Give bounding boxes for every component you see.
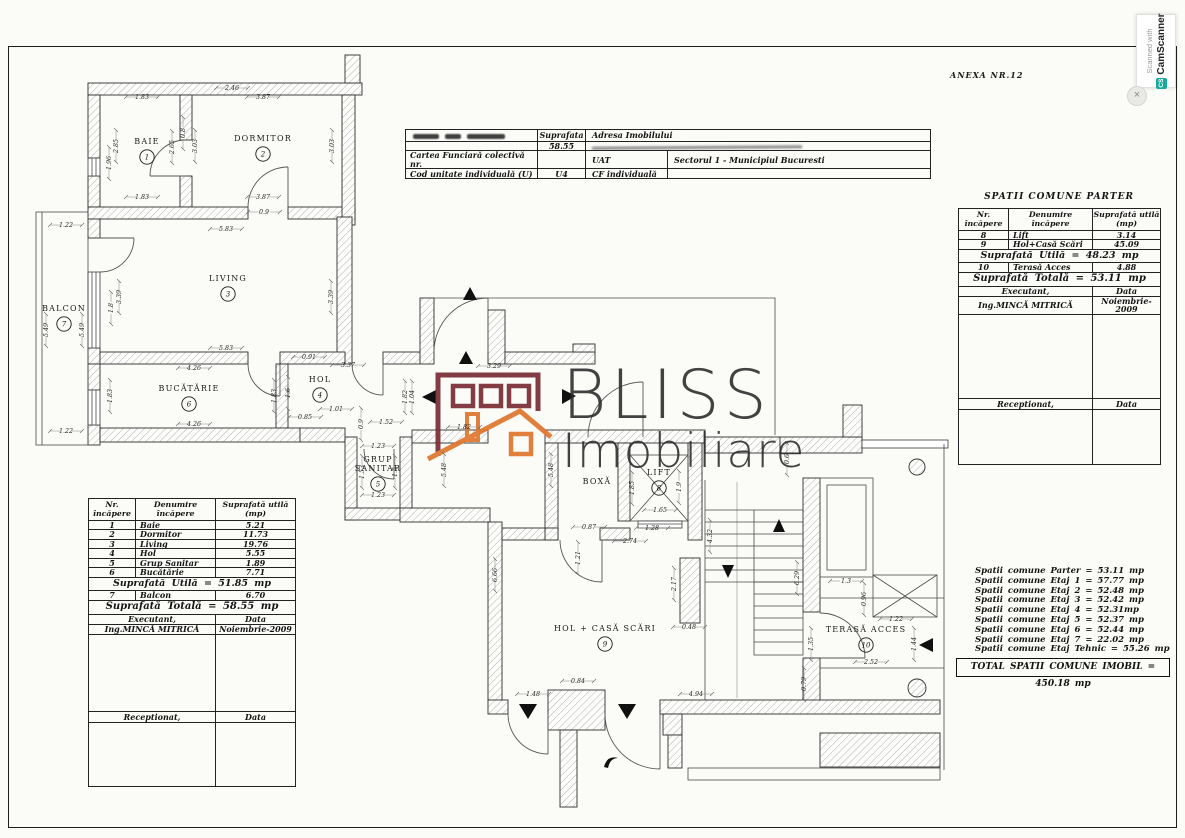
table-row: 2Dormitor11.73: [89, 530, 296, 539]
dimension-label: 1.83: [107, 378, 114, 414]
svg-text:1.96: 1.96: [106, 156, 113, 170]
camscanner-logo-icon: CS: [1156, 78, 1167, 89]
svg-text:2.74: 2.74: [622, 538, 637, 545]
svg-text:5: 5: [376, 481, 381, 489]
dimension-label: 1.35: [808, 626, 815, 662]
svg-text:1.44: 1.44: [911, 637, 918, 651]
dimension-label: 1.21: [575, 540, 582, 576]
room-label: BAIE1: [134, 137, 159, 164]
svg-text:1.83: 1.83: [135, 194, 149, 201]
svg-text:3.87: 3.87: [256, 94, 270, 101]
total-common-areas-box: TOTAL SPATII COMUNE IMOBIL = 450.18 mp: [956, 658, 1170, 677]
dimension-label: 4.32: [707, 518, 714, 554]
table-row: 5Grup Sanitar1.89: [89, 558, 296, 567]
table-row: 6Bucătărie7.71: [89, 568, 296, 577]
dimension-label: 0.85: [287, 414, 323, 421]
table-row: 1Baie5.21: [89, 521, 296, 530]
staircase: [705, 480, 803, 700]
svg-text:1.8: 1.8: [108, 303, 115, 313]
svg-text:5.83: 5.83: [219, 226, 233, 233]
dimension-label: 1.04: [409, 379, 416, 415]
svg-text:LIVING: LIVING: [209, 274, 247, 283]
room-label: TERASĂ ACCES10: [826, 625, 907, 652]
summary-line: Spatii comune Etaj 4 = 52.31mp: [975, 605, 1170, 615]
dimension-label: 2.65: [169, 129, 176, 165]
property-id-table: Suprafata Adresa Imobilului 58.55 Cartea…: [405, 129, 931, 179]
room-label: LIVING3: [209, 274, 247, 301]
svg-text:0.9: 0.9: [358, 419, 365, 429]
dimension-label: 3.87: [245, 194, 281, 201]
svg-text:1.83: 1.83: [271, 389, 278, 403]
dimension-label: 1.83: [124, 194, 160, 201]
dimension-label: 1.8: [108, 290, 115, 326]
camscanner-badge: Scanned with CS CamScanner: [1136, 16, 1174, 88]
svg-text:5.48: 5.48: [548, 463, 555, 477]
dimension-label: 1.22: [48, 222, 84, 229]
dimension-label: 3.39: [328, 279, 335, 315]
svg-text:1.82: 1.82: [457, 424, 471, 431]
room-label: BUCĂTĂRIE6: [158, 384, 219, 411]
table-row: 10Terasă Acces4.88: [959, 262, 1161, 272]
summary-line: Spatii comune Etaj 7 = 22.02 mp: [975, 635, 1170, 645]
svg-text:9: 9: [603, 641, 608, 649]
svg-text:1.82: 1.82: [402, 390, 409, 404]
svg-text:8: 8: [657, 485, 662, 493]
summary-line: Spatii comune Parter = 53.11 mp: [975, 566, 1170, 576]
table-row: 8Lift3.14: [959, 231, 1161, 240]
svg-text:4.26: 4.26: [186, 421, 201, 428]
dimension-label: 2.85: [113, 128, 120, 164]
svg-text:3: 3: [226, 291, 231, 299]
svg-text:GRUP: GRUP: [363, 455, 392, 464]
dimension-label: 1.96: [106, 145, 113, 181]
svg-text:2.17: 2.17: [671, 577, 678, 592]
svg-text:0.96: 0.96: [861, 592, 868, 606]
apartment-areas-table: Nr.încăpere Denumireîncăpere Suprafată u…: [88, 498, 296, 787]
svg-text:2.65: 2.65: [169, 140, 176, 155]
summary-line: Spatii comune Etaj 5 = 52.37 mp: [975, 615, 1170, 625]
dimension-label: 1.52: [368, 419, 404, 426]
svg-text:1.35: 1.35: [808, 637, 815, 651]
svg-text:SANITAR: SANITAR: [355, 464, 402, 473]
dimension-label: 1.22: [48, 428, 84, 435]
summary-line: Spatii comune Etaj 3 = 52.42 mp: [975, 595, 1170, 605]
svg-text:7: 7: [62, 321, 67, 329]
svg-text:BAIE: BAIE: [134, 137, 159, 146]
illegible-text: [406, 130, 538, 142]
svg-text:0.8: 0.8: [180, 128, 187, 138]
badge-scanned-with: Scanned with: [1145, 28, 1154, 73]
svg-text:1.6: 1.6: [285, 388, 292, 398]
svg-text:3.87: 3.87: [256, 194, 270, 201]
close-icon[interactable]: ×: [1127, 86, 1147, 106]
svg-text:1.23: 1.23: [371, 443, 385, 450]
svg-text:6.66: 6.66: [492, 568, 499, 582]
svg-text:10: 10: [862, 642, 871, 650]
svg-text:1.04: 1.04: [409, 390, 416, 404]
dimension-label: 6.29: [794, 560, 801, 596]
svg-text:1.22: 1.22: [59, 222, 73, 229]
dimension-label: 1.48: [515, 691, 551, 698]
svg-text:5.48: 5.48: [441, 463, 448, 477]
anexa-label: ANEXA NR.12: [950, 70, 1023, 80]
right-table-title: SPATII COMUNE PARTER: [958, 192, 1160, 202]
svg-text:6.29: 6.29: [794, 571, 801, 585]
dimension-label: 3.03: [329, 128, 336, 164]
summary-line: Spatii comune Etaj Tehnic = 55.26 mp: [975, 644, 1170, 654]
dimension-label: 1.44: [911, 626, 918, 662]
illegible-address: [586, 142, 931, 151]
svg-text:1.01: 1.01: [329, 406, 343, 413]
svg-text:3.29: 3.29: [487, 363, 501, 370]
svg-text:0.48: 0.48: [682, 624, 696, 631]
dimension-label: 5.49: [79, 312, 86, 348]
summary-line: Spatii comune Etaj 1 = 57.77 mp: [975, 576, 1170, 586]
svg-text:3.37: 3.37: [341, 362, 355, 369]
dimension-label: 1.23: [360, 492, 396, 499]
dimension-label: 0.48: [671, 624, 707, 631]
svg-text:3.03: 3.03: [329, 139, 336, 153]
dimension-label: 1.65: [642, 507, 678, 514]
watermark-sub: Imobiliare: [562, 424, 805, 479]
svg-text:1: 1: [145, 154, 149, 162]
badge-brand: CamScanner: [1156, 13, 1167, 74]
svg-text:6: 6: [187, 401, 192, 409]
room-label: HOL4: [309, 375, 331, 402]
svg-text:3.39: 3.39: [116, 290, 123, 304]
svg-text:1.48: 1.48: [526, 691, 540, 698]
watermark-logo-icon: [428, 375, 551, 459]
svg-text:0.9: 0.9: [259, 209, 269, 216]
dimension-label: 2.52: [853, 659, 889, 666]
table-row: 9Hol+Casă Scări45.09: [959, 240, 1161, 249]
svg-text:4.94: 4.94: [688, 691, 703, 698]
room-label: DORMITOR2: [234, 134, 292, 161]
svg-text:TERASĂ ACCES: TERASĂ ACCES: [826, 625, 907, 634]
dimension-label: 0.9: [246, 209, 282, 216]
svg-text:0.91: 0.91: [302, 354, 316, 361]
dimension-label: 4.26: [176, 365, 212, 372]
svg-text:1.23: 1.23: [371, 492, 385, 499]
svg-text:1.22: 1.22: [889, 616, 903, 623]
svg-text:1.9: 1.9: [676, 482, 683, 492]
svg-text:0.79: 0.79: [801, 677, 808, 691]
dimension-label: 5.83: [208, 345, 244, 352]
table-row: 7Balcon6.70: [89, 590, 296, 600]
svg-text:1.65: 1.65: [653, 507, 667, 514]
svg-text:1.83: 1.83: [135, 94, 149, 101]
svg-text:2.46: 2.46: [224, 85, 239, 92]
dimension-label: 5.48: [441, 452, 448, 488]
dimension-label: 0.96: [861, 581, 868, 617]
svg-text:3.03: 3.03: [192, 139, 199, 153]
svg-text:0.85: 0.85: [298, 414, 312, 421]
svg-text:2.85: 2.85: [113, 139, 120, 154]
svg-text:1.83: 1.83: [107, 389, 114, 403]
room-label: HOL + CASĂ SCĂRI9: [554, 624, 656, 651]
svg-text:1.3: 1.3: [841, 578, 851, 585]
svg-text:4: 4: [317, 392, 322, 400]
svg-text:3.39: 3.39: [328, 290, 335, 304]
dimension-label: 5.49: [43, 312, 50, 348]
svg-text:5.83: 5.83: [219, 345, 233, 352]
svg-text:5.49: 5.49: [43, 323, 50, 337]
svg-text:1.22: 1.22: [59, 428, 73, 435]
svg-text:5.49: 5.49: [79, 323, 86, 337]
svg-text:HOL + CASĂ SCĂRI: HOL + CASĂ SCĂRI: [554, 624, 656, 633]
dimension-label: 2.17: [671, 566, 678, 602]
svg-text:0.87: 0.87: [582, 524, 596, 531]
dimension-label: 4.26: [176, 421, 212, 428]
svg-text:2.52: 2.52: [863, 659, 878, 666]
svg-text:DORMITOR: DORMITOR: [234, 134, 292, 143]
dimension-label: 1.01: [318, 406, 354, 413]
dimension-label: 0.9: [358, 406, 365, 442]
dimension-label: 3.39: [116, 279, 123, 315]
summary-line: Spatii comune Etaj 2 = 52.48 mp: [975, 586, 1170, 596]
svg-text:BALCON: BALCON: [42, 304, 86, 313]
svg-text:0.84: 0.84: [571, 678, 585, 685]
dimension-label: 4.94: [678, 691, 714, 698]
common-areas-summary: Spatii comune Parter = 53.11 mp Spatii c…: [975, 566, 1170, 654]
common-areas-table: Nr.încăpere Denumireîncăpere Suprafată u…: [958, 208, 1161, 465]
dimension-label: 5.83: [208, 226, 244, 233]
svg-text:2: 2: [260, 151, 266, 159]
summary-line: Spatii comune Etaj 6 = 52.44 mp: [975, 625, 1170, 635]
svg-text:HOL: HOL: [309, 375, 331, 384]
dimension-label: 1.82: [402, 379, 409, 415]
dimension-label: 0.84: [560, 678, 596, 685]
table-row: 3Living19.76: [89, 539, 296, 548]
dimension-label: 1.23: [360, 443, 396, 450]
dimension-label: 3.03: [192, 128, 199, 164]
svg-text:1.52: 1.52: [379, 419, 393, 426]
svg-text:BUCĂTĂRIE: BUCĂTĂRIE: [158, 384, 219, 393]
svg-text:1.21: 1.21: [575, 551, 582, 565]
table-row: 4Hol5.55: [89, 549, 296, 558]
svg-text:1.28: 1.28: [645, 525, 659, 532]
svg-text:1.85: 1.85: [629, 481, 636, 495]
svg-text:4.32: 4.32: [707, 529, 714, 544]
svg-text:4.26: 4.26: [186, 365, 201, 372]
scanned-floor-plan-page: { "anexa": "ANEXA NR.12", "badge": { "li…: [0, 0, 1185, 838]
dimension-label: 1.3: [828, 578, 864, 585]
